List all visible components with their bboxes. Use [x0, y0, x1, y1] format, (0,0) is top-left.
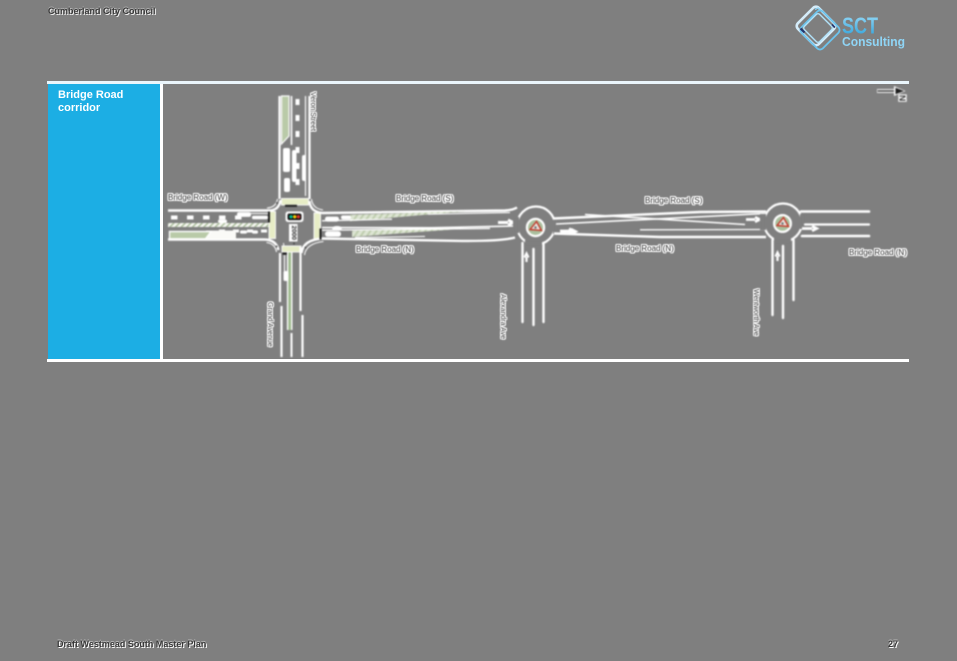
svg-text:2000: 2000	[290, 226, 297, 241]
svg-text:N: N	[898, 95, 908, 101]
